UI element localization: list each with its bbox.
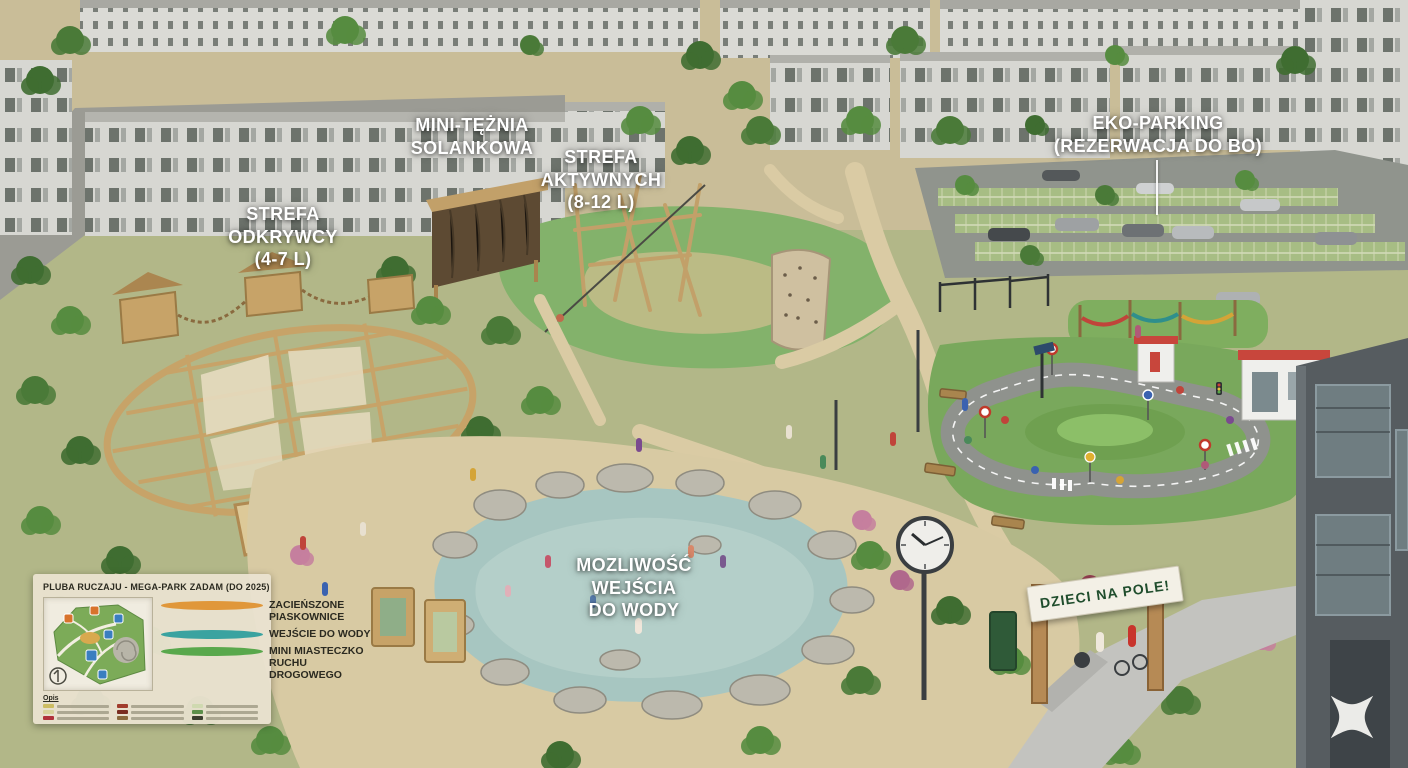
label-strefa-aktywnych: STREFA AKTYWNYCH (8-12 L)	[541, 146, 662, 214]
map-mini-legend	[43, 704, 258, 720]
eko-parking-leader-line	[1156, 160, 1158, 215]
site-map-inset	[43, 597, 153, 691]
park-rendering: STREFA ODKRYWCY (4-7 L) MINI-TĘŻNIA SOLA…	[0, 0, 1408, 768]
label-wejscie-do-wody: MOZLIWOŚĆ WEJŚCIA DO WODY	[576, 554, 692, 622]
legend-item-traffic-town: MINI MIASTECZKO RUCHU DROGOWEGO	[161, 645, 371, 681]
residential-building-right	[1296, 338, 1408, 768]
traffic-town	[928, 336, 1330, 525]
legend-card: PLUBA RUCZAJU - MEGA-PARK ZADAM (DO 2025…	[33, 574, 271, 724]
label-mini-teznia: MINI-TĘŻNIA SOLANKOWA	[411, 114, 534, 159]
mini-gas-station	[1134, 336, 1178, 382]
climbing-wall	[772, 250, 830, 350]
info-board	[990, 612, 1016, 670]
legend-item-sandboxes: ZACIEŃSZONE PIASKOWNICE	[161, 599, 371, 623]
label-strefa-odkrywcy: STREFA ODKRYWCY (4-7 L)	[228, 203, 338, 271]
label-eko-parking: EKO-PARKING (REZERWACJA DO BO)	[1054, 112, 1262, 157]
orange-dot-icon	[161, 601, 263, 610]
legend-title: PLUBA RUCZAJU - MEGA-PARK ZADAM (DO 2025…	[43, 582, 263, 592]
teal-dot-icon	[161, 630, 263, 639]
legend-item-water-entry: WEJŚCIE DO WODY	[161, 628, 371, 640]
map-legend-caption: Opis	[43, 695, 263, 702]
green-dot-icon	[161, 647, 263, 656]
legend-items: ZACIEŃSZONE PIASKOWNICE WEJŚCIE DO WODY …	[161, 597, 371, 691]
